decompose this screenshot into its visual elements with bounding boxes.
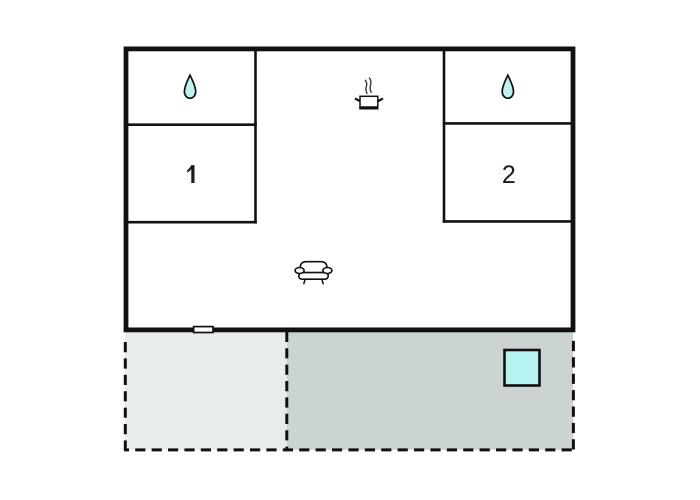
svg-text:2: 2 [502,161,516,189]
